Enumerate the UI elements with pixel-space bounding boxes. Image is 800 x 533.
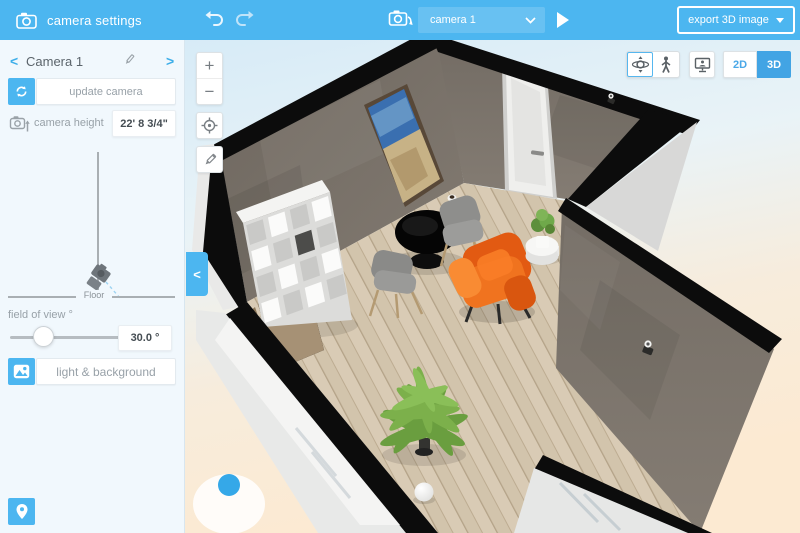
undo-icon xyxy=(205,10,224,27)
floor-label: Floor xyxy=(76,290,112,300)
center-view-button[interactable] xyxy=(196,112,223,139)
sidebar-title: camera settings xyxy=(47,13,142,28)
camera-height-label: camera height xyxy=(34,117,104,129)
camera-position-marker[interactable] xyxy=(193,474,265,533)
scene-3d-render[interactable] xyxy=(185,40,800,533)
camera-selector-row: < Camera 1 > xyxy=(0,50,185,74)
camera-switch-button[interactable] xyxy=(388,8,413,35)
fov-label: field of view ° xyxy=(8,309,73,321)
light-background-button[interactable]: light & background xyxy=(8,358,176,385)
orbit-icon xyxy=(631,56,650,73)
location-pin-icon xyxy=(15,503,29,520)
export-3d-image-button[interactable]: export 3D image xyxy=(677,6,795,34)
mode-3d-button[interactable]: 3D xyxy=(757,51,791,78)
redo-icon xyxy=(235,10,254,27)
play-camera-button[interactable] xyxy=(557,12,569,28)
image-icon xyxy=(13,364,30,379)
camera-name: Camera 1 xyxy=(26,54,83,69)
camera-icon xyxy=(16,12,37,29)
zoom-out-button[interactable]: − xyxy=(197,79,222,105)
draw-button[interactable] xyxy=(196,146,223,173)
image-icon-box xyxy=(8,358,35,385)
orbit-mode-button[interactable] xyxy=(627,52,653,77)
update-camera-label: update camera xyxy=(36,78,176,105)
camera-height-row: camera height 22' 8 3/4" xyxy=(0,110,185,137)
location-button[interactable] xyxy=(8,498,35,525)
export-caret-icon xyxy=(776,18,784,23)
zoom-controls: + − xyxy=(196,52,223,105)
top-toolbar: camera 1 export 3D image xyxy=(185,0,800,40)
viewport-3d[interactable]: + − < xyxy=(185,40,800,533)
floorplanner-app: + − < xyxy=(0,0,800,533)
zoom-in-button[interactable]: + xyxy=(197,53,222,79)
next-camera-chevron[interactable]: > xyxy=(166,53,174,69)
export-label: export 3D image xyxy=(688,14,769,26)
camera-height-icon xyxy=(9,114,31,134)
fov-slider-handle[interactable] xyxy=(33,326,54,347)
walk-mode-button[interactable] xyxy=(653,52,679,77)
sidebar-header: camera settings xyxy=(0,0,185,40)
camera-select-dropdown[interactable]: camera 1 xyxy=(418,7,545,33)
mode-2d-button[interactable]: 2D xyxy=(723,51,757,78)
camera-select-value: camera 1 xyxy=(430,14,525,26)
sync-icon xyxy=(13,83,30,100)
redo-button[interactable] xyxy=(235,10,254,32)
camera-switch-icon xyxy=(388,8,413,30)
navigation-mode-group xyxy=(626,51,680,78)
sync-icon-box xyxy=(8,78,35,105)
rename-camera-button[interactable] xyxy=(122,53,136,72)
camera-settings-sidebar: camera settings < Camera 1 > xyxy=(0,0,185,533)
fov-value[interactable]: 30.0 ° xyxy=(118,325,172,351)
edit-pencil-icon xyxy=(122,53,136,67)
presentation-icon xyxy=(694,57,711,73)
chevron-down-icon xyxy=(525,17,536,24)
sidebar-collapse-tab[interactable]: < xyxy=(186,252,208,296)
undo-button[interactable] xyxy=(205,10,224,32)
presentation-mode-button[interactable] xyxy=(689,51,715,78)
walk-person-icon xyxy=(660,56,672,74)
prev-camera-chevron[interactable]: < xyxy=(10,53,18,69)
camera-height-value[interactable]: 22' 8 3/4" xyxy=(112,110,176,137)
light-background-label: light & background xyxy=(36,358,176,385)
pencil-icon xyxy=(202,152,218,168)
update-camera-button[interactable]: update camera xyxy=(8,78,176,105)
target-icon xyxy=(201,117,218,134)
